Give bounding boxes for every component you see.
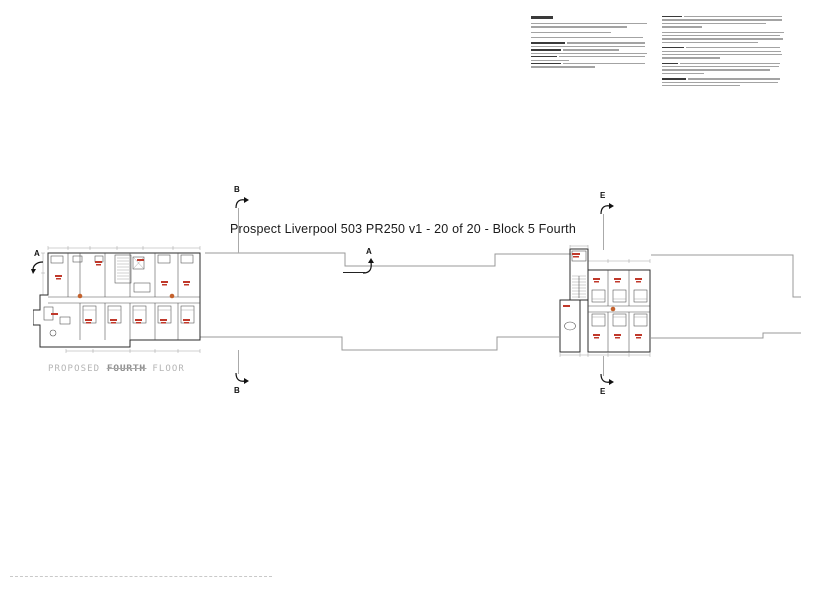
section-arrow-b-bottom xyxy=(234,373,250,386)
section-marker-b-bottom: B xyxy=(234,387,240,395)
floor-label-pre: PROPOSED xyxy=(48,364,100,374)
floor-plan-right-block xyxy=(556,244,656,358)
floor-label: PROPOSED FOURTH FLOOR xyxy=(48,364,185,374)
section-line-e-bottom xyxy=(603,356,604,376)
section-marker-a-middle: A xyxy=(366,248,372,256)
section-marker-e-bottom: E xyxy=(600,388,605,396)
left-plan-room-walls xyxy=(68,253,178,340)
floor-label-post: FLOOR xyxy=(152,364,185,374)
right-plan-door-markers xyxy=(611,307,616,312)
section-arrow-a-left xyxy=(31,260,46,276)
section-arrow-e-bottom xyxy=(599,374,615,387)
outline-upper-link xyxy=(205,253,571,266)
section-line-b-bottom xyxy=(238,350,239,374)
left-plan-door-markers xyxy=(78,294,175,299)
outline-lower-link xyxy=(200,337,559,350)
floor-label-word: FOURTH xyxy=(107,364,146,374)
section-marker-b-top: B xyxy=(234,186,240,194)
section-arrow-e-top xyxy=(599,202,615,215)
section-arrow-b-top xyxy=(234,196,250,209)
right-plan-room-labels xyxy=(563,253,642,339)
right-plan-furniture xyxy=(565,290,648,330)
floor-plan-left-block xyxy=(33,243,213,355)
section-line-a-middle xyxy=(343,272,365,273)
section-marker-a-left: A xyxy=(34,250,40,258)
drawing-sheet: Prospect Liverpool 503 PR250 v1 - 20 of … xyxy=(0,0,828,598)
left-plan-corridor xyxy=(48,297,200,303)
outline-lower-right xyxy=(651,333,801,338)
section-marker-e-top: E xyxy=(600,192,605,200)
section-line-b-top xyxy=(238,208,239,253)
left-plan-outline xyxy=(33,253,200,347)
right-plan-corridor xyxy=(588,306,650,312)
outline-upper-right xyxy=(651,255,801,297)
section-line-e-top xyxy=(603,214,604,250)
sheet-bottom-dashed-line xyxy=(10,576,272,577)
left-plan-dimension-ticks xyxy=(41,246,200,353)
left-plan-room-labels xyxy=(51,259,190,324)
